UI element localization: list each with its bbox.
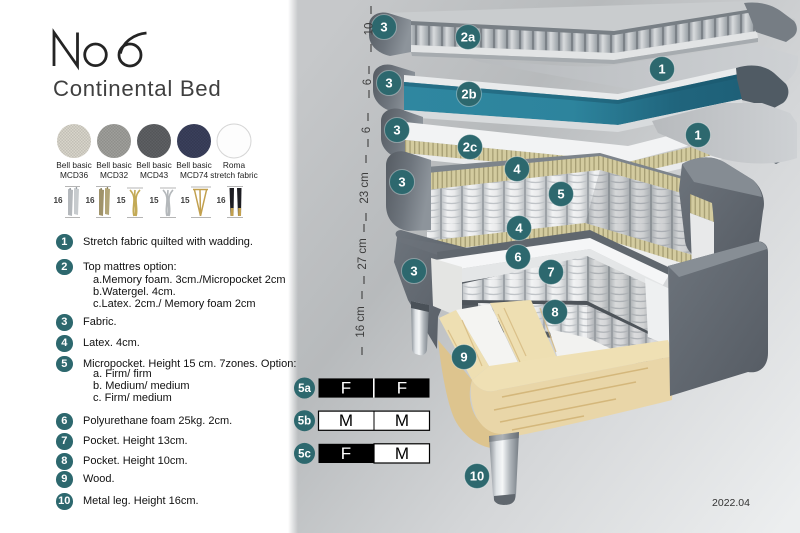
svg-text:2c: 2c [463, 140, 477, 155]
svg-text:Continental Bed: Continental Bed [53, 76, 221, 101]
svg-text:5a: 5a [298, 383, 311, 395]
svg-text:M: M [395, 444, 409, 463]
svg-text:3: 3 [398, 175, 405, 190]
svg-text:3: 3 [385, 76, 392, 91]
svg-text:3: 3 [393, 123, 400, 138]
svg-text:5b: 5b [298, 416, 311, 428]
svg-text:15: 15 [180, 196, 190, 205]
svg-text:stretch fabric: stretch fabric [210, 170, 258, 180]
svg-text:F: F [397, 379, 407, 398]
svg-text:3: 3 [410, 264, 417, 279]
svg-text:15: 15 [149, 196, 159, 205]
svg-text:Bell basic: Bell basic [56, 160, 92, 170]
svg-text:6: 6 [361, 127, 373, 133]
svg-text:M: M [339, 411, 353, 430]
svg-text:Bell basic: Bell basic [176, 160, 212, 170]
svg-text:27 cm: 27 cm [357, 238, 369, 269]
svg-text:2a: 2a [461, 30, 476, 45]
svg-text:5: 5 [557, 187, 564, 202]
svg-text:16: 16 [216, 196, 226, 205]
svg-text:Roma: Roma [223, 160, 246, 170]
svg-text:5c: 5c [298, 448, 311, 460]
svg-text:10: 10 [364, 23, 376, 36]
svg-text:Bell basic: Bell basic [96, 160, 132, 170]
svg-text:16 cm: 16 cm [355, 306, 367, 337]
svg-text:15: 15 [116, 196, 126, 205]
svg-text:7: 7 [547, 265, 554, 280]
svg-text:8: 8 [551, 305, 558, 320]
svg-text:6: 6 [514, 250, 521, 265]
svg-text:6: 6 [362, 79, 374, 85]
svg-text:MCD74: MCD74 [180, 170, 209, 180]
svg-text:2b: 2b [461, 87, 476, 102]
svg-text:4: 4 [513, 162, 521, 177]
svg-text:1: 1 [694, 128, 701, 143]
svg-text:MCD43: MCD43 [140, 170, 169, 180]
svg-text:M: M [395, 411, 409, 430]
svg-text:4: 4 [515, 221, 523, 236]
svg-text:MCD36: MCD36 [60, 170, 89, 180]
svg-text:16: 16 [53, 196, 63, 205]
svg-text:16: 16 [85, 196, 95, 205]
svg-text:23 cm: 23 cm [359, 172, 371, 203]
svg-text:9: 9 [460, 350, 467, 365]
svg-text:F: F [341, 444, 351, 463]
svg-text:F: F [341, 379, 351, 398]
svg-text:3: 3 [380, 20, 387, 35]
svg-text:10: 10 [470, 469, 484, 484]
svg-text:1: 1 [658, 62, 665, 77]
svg-text:Bell basic: Bell basic [136, 160, 172, 170]
svg-text:2022.04: 2022.04 [712, 497, 750, 509]
svg-text:MCD32: MCD32 [100, 170, 129, 180]
